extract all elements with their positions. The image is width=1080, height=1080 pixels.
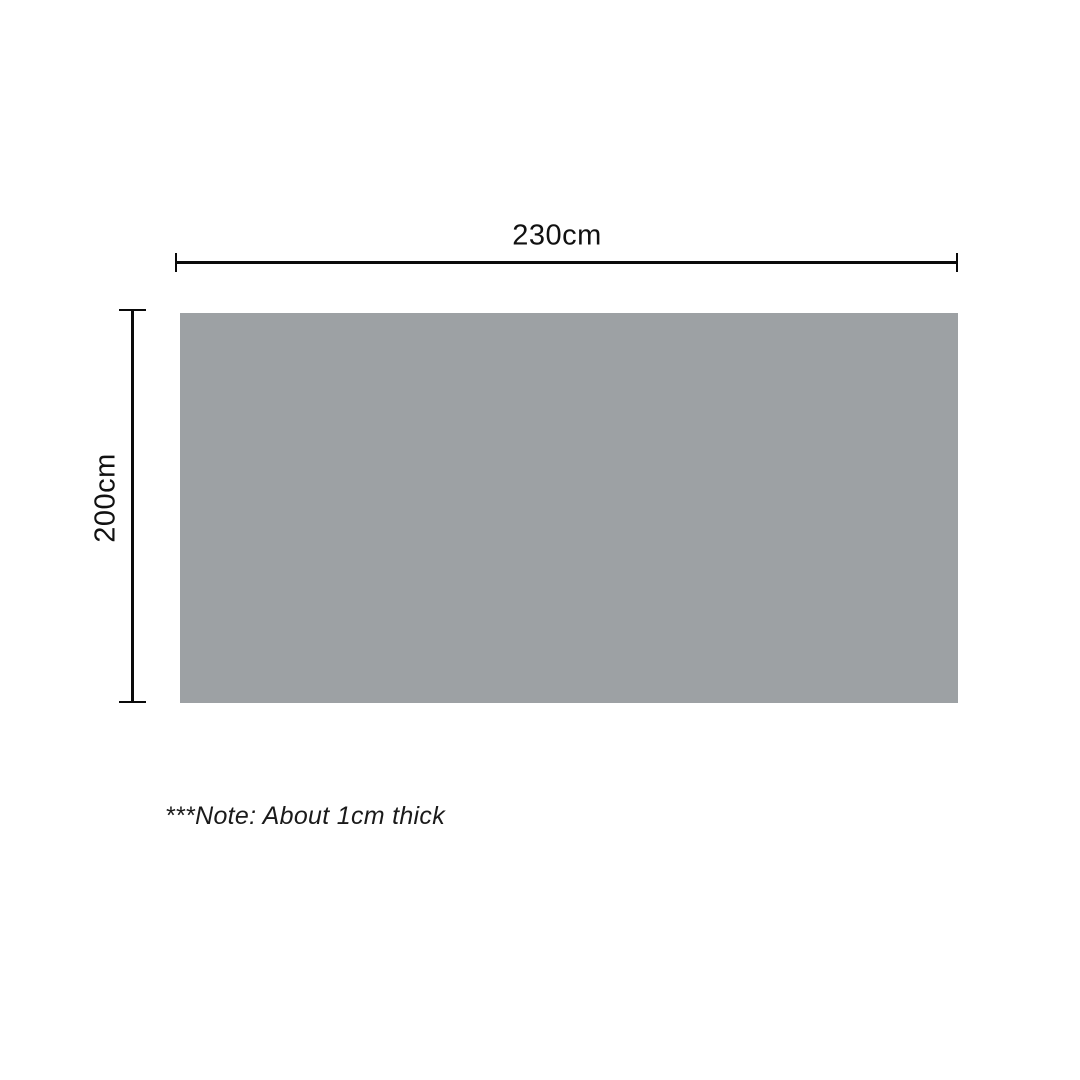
product-panel-rectangle [180, 313, 958, 703]
width-dimension-tick-right [956, 253, 958, 272]
thickness-note: ***Note: About 1cm thick [165, 802, 445, 831]
height-dimension-label: 200cm [90, 453, 123, 543]
height-dimension-tick-bottom [119, 701, 146, 703]
width-dimension-line [175, 253, 958, 272]
width-dimension-label: 230cm [512, 220, 602, 253]
height-dimension-line [119, 309, 146, 703]
height-dimension-rule [131, 309, 134, 703]
width-dimension-rule [175, 261, 958, 264]
diagram-canvas: 230cm 200cm ***Note: About 1cm thick [0, 0, 1080, 1080]
